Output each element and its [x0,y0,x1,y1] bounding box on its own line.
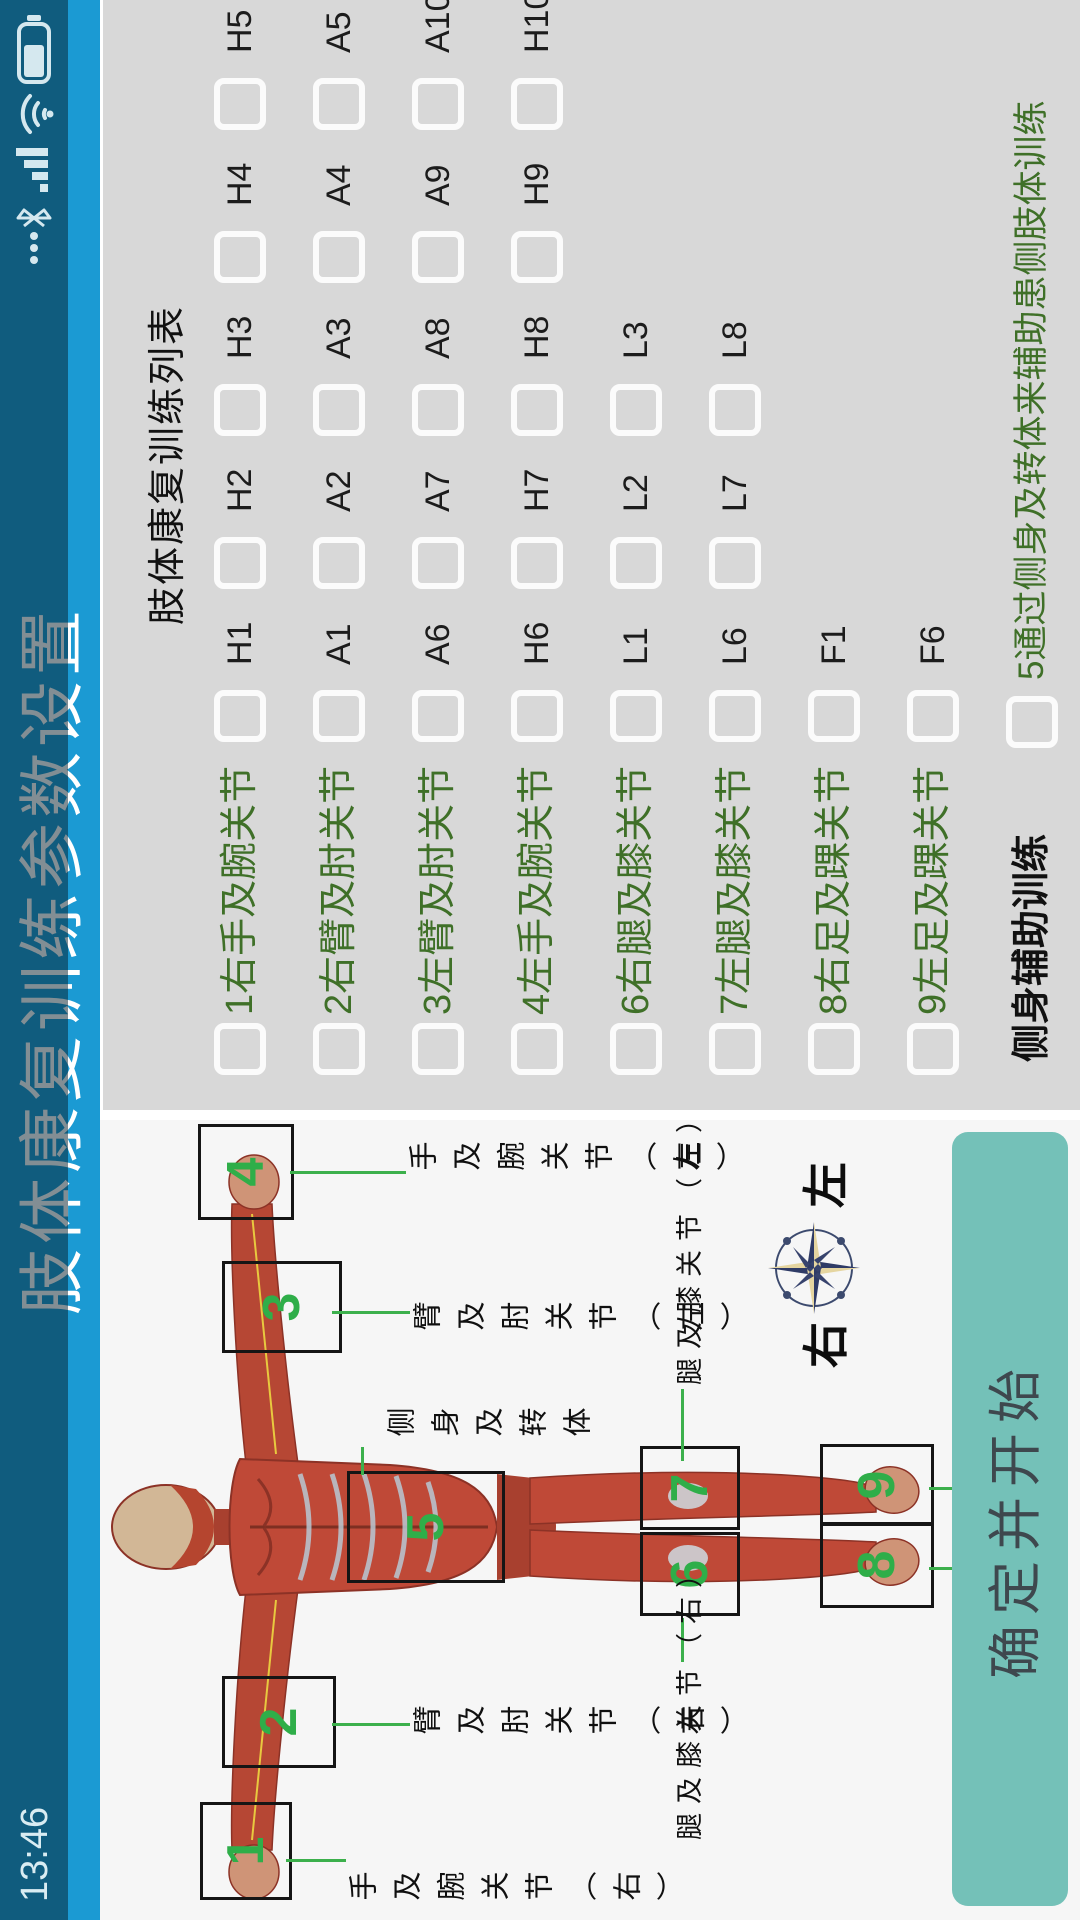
exercise-label: H8 [511,316,563,359]
exercise-label: A1 [313,623,365,665]
row-select-checkbox[interactable] [313,1023,365,1075]
row-label: 7左腿及膝关节 [709,766,761,1015]
exercise-label: H7 [511,469,563,512]
row-select-checkbox[interactable] [412,1023,464,1075]
training-row: 6右腿及膝关节L1L2L3 [610,0,662,1110]
exercise-checkbox-H7[interactable] [511,537,563,589]
exercise-checkbox-A5[interactable] [313,78,365,130]
exercise-checkbox-A7[interactable] [412,537,464,589]
anatomy-label: 侧身及转体 [386,1404,606,1446]
exercise-checkbox-H4[interactable] [214,231,266,283]
leader-line [332,1723,410,1726]
exercise-checkbox-H3[interactable] [214,384,266,436]
joint-marker-number: 1 [216,1837,276,1866]
exercise-label: H9 [511,163,563,206]
joint-marker-box-3[interactable]: 3 [222,1261,342,1353]
joint-marker-box-5[interactable]: 5 [347,1471,505,1583]
leader-line [286,1859,346,1862]
compass-rose-icon [766,1220,862,1316]
compass-left-label: 左 [790,1162,856,1208]
exercise-checkbox-L7[interactable] [709,537,761,589]
confirm-start-label: 确定并开始 [971,1359,1050,1679]
anatomy-label: 手及腕关节（右） [348,1868,700,1910]
title-bar: 肢体康复训练参数设置 13:46 [0,0,100,1920]
row-label: 2右臂及肘关节 [313,766,365,1015]
exercise-label: H4 [214,163,266,206]
joint-marker-box-2[interactable]: 2 [222,1676,336,1768]
exercise-checkbox-H5[interactable] [214,78,266,130]
exercise-label: A8 [412,317,464,359]
leader-line [332,1311,410,1314]
exercise-checkbox-L8[interactable] [709,384,761,436]
exercise-label: A10 [412,0,464,53]
wifi-icon [0,88,68,140]
anatomy-label: 腿及膝关节（左） [668,1120,707,1385]
exercise-label: H1 [214,622,266,665]
side-assist-header: 侧身辅助训练 [1006,834,1058,1062]
exercise-label: A7 [412,470,464,512]
training-row: 4左手及腕关节H6H7H8H9H10 [511,0,563,1110]
training-row: 2右臂及肘关节A1A2A3A4A5 [313,0,365,1110]
exercise-label: F6 [907,625,959,665]
anatomy-label: 手及腕关节（左） [408,1138,760,1180]
exercise-label: H10 [511,0,563,53]
anatomy-label: 臂及肘关节（左） [412,1298,764,1340]
exercise-label: A6 [412,623,464,665]
exercise-label: L8 [709,321,761,359]
row-select-checkbox[interactable] [709,1023,761,1075]
screenshot-root: 肢体康复训练参数设置 13:46 [0,0,1080,1920]
row-label: 4左手及腕关节 [511,766,563,1015]
joint-marker-box-9[interactable]: 9 [820,1444,934,1526]
training-row: 1右手及腕关节H1H2H3H4H5 [214,0,266,1110]
exercise-label: L7 [709,474,761,512]
training-row: 8右足及踝关节F1 [808,0,860,1110]
bluetooth-icon [0,202,68,232]
anatomy-panel: 123456789 手及腕关节（右）臂及肘关节（右）臂及肘关节（左）手及腕关节（… [100,1120,1080,1920]
anatomy-label: 臂及肘关节（右） [412,1702,764,1744]
joint-marker-number: 7 [660,1474,720,1503]
joint-marker-number: 3 [252,1293,312,1322]
exercise-label: A9 [412,164,464,206]
row-select-checkbox[interactable] [511,1023,563,1075]
exercise-checkbox-H6[interactable] [511,690,563,742]
exercise-checkbox-H9[interactable] [511,231,563,283]
signal-icon [0,144,68,196]
joint-marker-number: 5 [396,1513,456,1542]
joint-marker-box-7[interactable]: 7 [640,1446,740,1530]
row-select-checkbox[interactable] [214,1023,266,1075]
exercise-checkbox-L3[interactable] [610,384,662,436]
exercise-label: L2 [610,474,662,512]
row-label: 9左足及踝关节 [907,766,959,1015]
compass-right-label: 右 [790,1322,856,1368]
exercise-checkbox-F1[interactable] [808,690,860,742]
training-row: 7左腿及膝关节L6L7L8 [709,0,761,1110]
exercise-checkbox-L2[interactable] [610,537,662,589]
exercise-checkbox-A2[interactable] [313,537,365,589]
exercise-checkbox-H10[interactable] [511,78,563,130]
exercise-label: L3 [610,321,662,359]
exercise-checkbox-A3[interactable] [313,384,365,436]
exercise-checkbox-L6[interactable] [709,690,761,742]
exercise-label: H3 [214,316,266,359]
leader-line [681,1389,684,1461]
exercise-checkbox-H1[interactable] [214,690,266,742]
joint-marker-number: 4 [216,1158,276,1187]
joint-marker-box-8[interactable]: 8 [820,1522,934,1608]
exercise-label: H6 [511,622,563,665]
training-row: 9左足及踝关节F6 [907,0,959,1110]
joint-marker-number: 2 [249,1708,309,1737]
exercise-label: A4 [313,164,365,206]
battery-icon [0,12,68,84]
exercise-checkbox-A6[interactable] [412,690,464,742]
exercise-checkbox-L1[interactable] [610,690,662,742]
training-list-panel: 肢体康复训练列表 1右手及腕关节H1H2H3H4H52右臂及肘关节A1A2A3A… [103,0,1080,1110]
training-list-header: 肢体康复训练列表 [136,305,191,625]
status-bar: 13:46 [0,0,68,1920]
joint-marker-number: 8 [847,1551,907,1580]
row-label: 1右手及腕关节 [214,766,266,1015]
confirm-start-button[interactable]: 确定并开始 [952,1132,1068,1906]
row-label: 3左臂及肘关节 [412,766,464,1015]
side-assist-row: 侧身辅助训练 5通过侧身及转体来辅助患侧肢体训练 [1006,0,1058,1110]
exercise-label: H5 [214,10,266,53]
exercise-label: A2 [313,470,365,512]
joint-marker-box-4[interactable]: 4 [198,1124,294,1220]
leader-line [290,1171,406,1174]
exercise-label: F1 [808,625,860,665]
side-assist-checkbox[interactable] [1006,696,1058,748]
landscape-stage: 肢体康复训练参数设置 13:46 [0,0,1080,1920]
exercise-label: A3 [313,317,365,359]
training-row: 3左臂及肘关节A6A7A8A9A10 [412,0,464,1110]
exercise-label: H2 [214,469,266,512]
row-label: 8右足及踝关节 [808,766,860,1015]
joint-marker-number: 9 [847,1471,907,1500]
exercise-checkbox-A4[interactable] [313,231,365,283]
row-label: 6右腿及膝关节 [610,766,662,1015]
leader-line [361,1447,364,1475]
exercise-checkbox-A8[interactable] [412,384,464,436]
exercise-checkbox-A10[interactable] [412,78,464,130]
exercise-checkbox-A1[interactable] [313,690,365,742]
exercise-label: A5 [313,11,365,53]
row-select-checkbox[interactable] [808,1023,860,1075]
exercise-label: L6 [709,627,761,665]
exercise-label: L1 [610,627,662,665]
side-assist-label: 5通过侧身及转体来辅助患侧肢体训练 [1006,101,1058,680]
anatomy-label: 腿及膝关节（右） [668,1552,707,1840]
joint-marker-box-1[interactable]: 1 [200,1802,292,1900]
exercise-checkbox-F6[interactable] [907,690,959,742]
exercise-checkbox-A9[interactable] [412,231,464,283]
row-select-checkbox[interactable] [907,1023,959,1075]
exercise-checkbox-H8[interactable] [511,384,563,436]
more-notifications-icon [0,226,68,270]
row-select-checkbox[interactable] [610,1023,662,1075]
status-clock: 13:46 [0,1807,68,1902]
exercise-checkbox-H2[interactable] [214,537,266,589]
